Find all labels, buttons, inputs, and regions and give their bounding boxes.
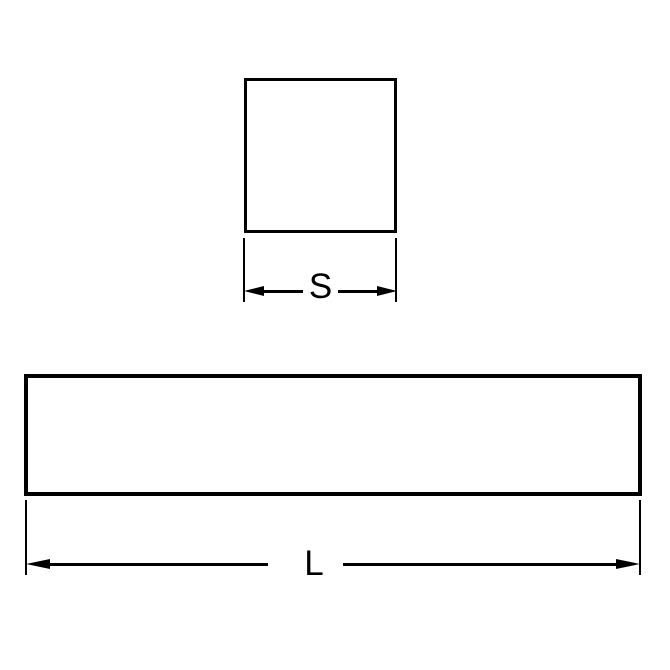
bar-length-dimension-label: L — [296, 546, 332, 581]
square-cross-section-outline — [244, 78, 397, 233]
l-dimension-line-left-segment — [46, 563, 268, 566]
l-dimension-line-right-segment — [343, 563, 620, 566]
technical-diagram-canvas: S L — [0, 0, 670, 670]
bar-length-outline — [24, 374, 642, 496]
square-side-dimension-label: S — [244, 269, 397, 304]
l-arrowhead-right-icon — [616, 559, 640, 569]
